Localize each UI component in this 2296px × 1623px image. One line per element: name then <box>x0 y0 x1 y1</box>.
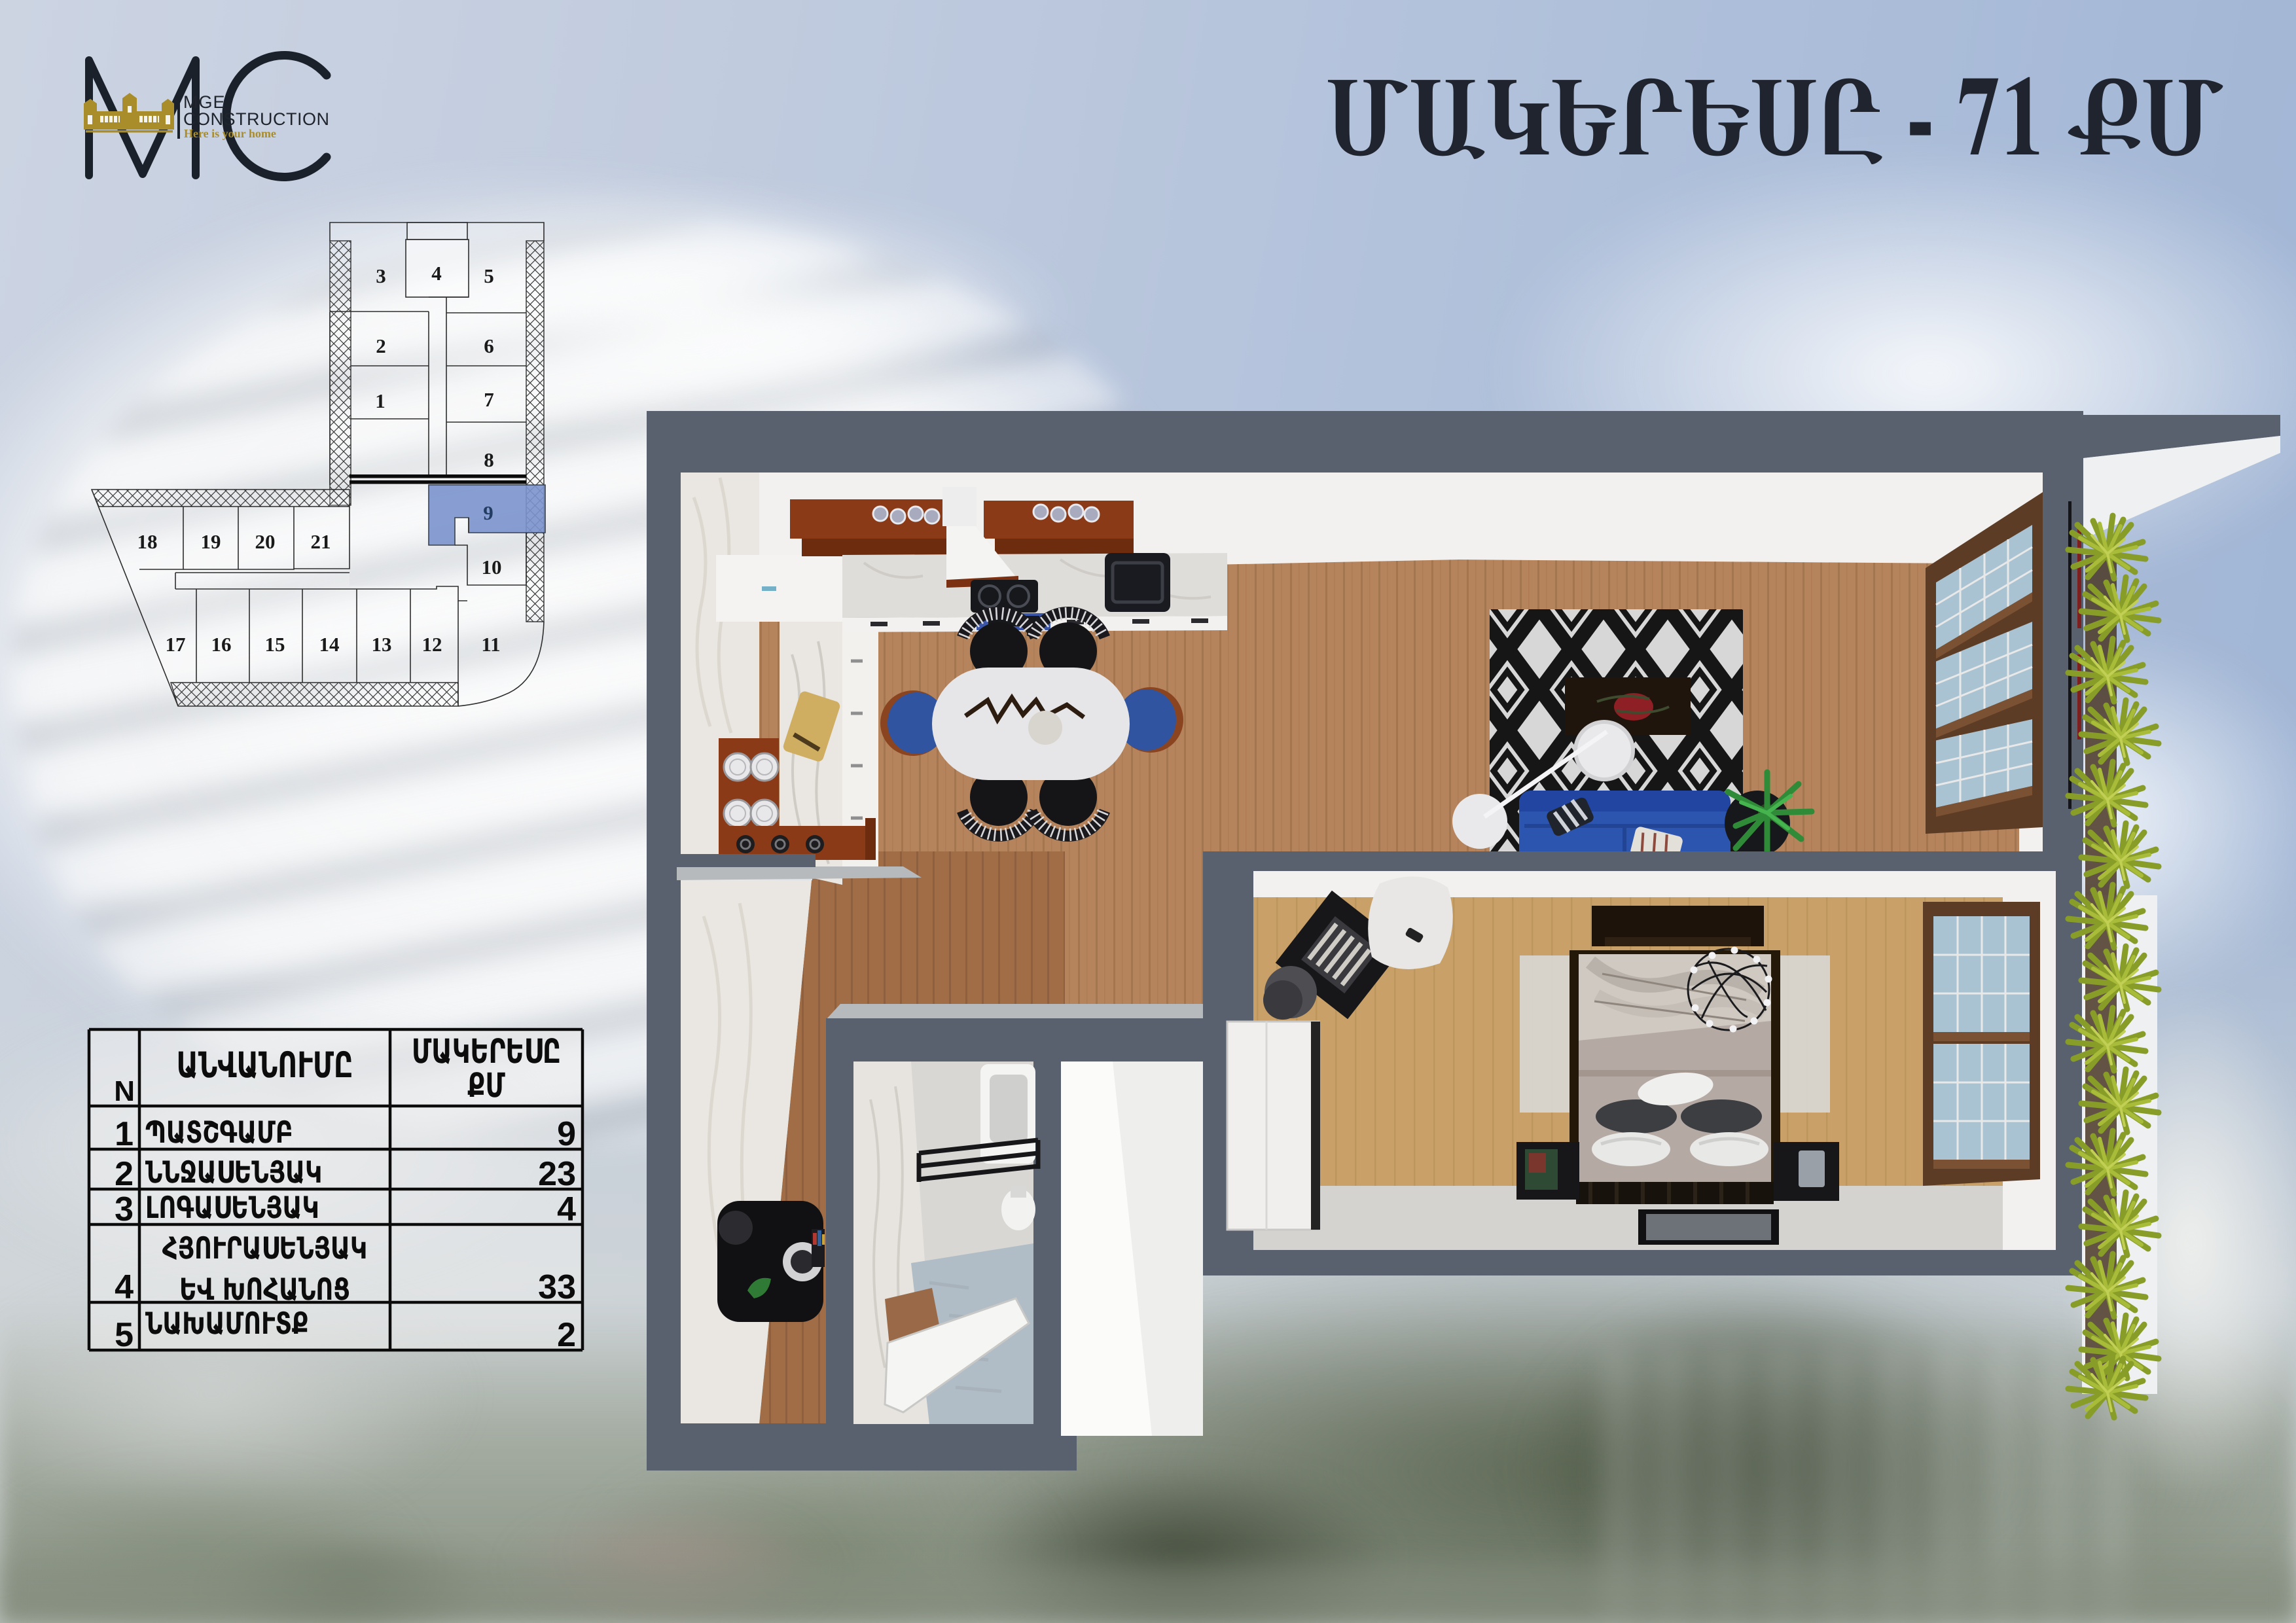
svg-text:15: 15 <box>265 633 285 656</box>
svg-text:5: 5 <box>115 1316 134 1354</box>
svg-text:2: 2 <box>115 1155 134 1193</box>
svg-text:23: 23 <box>538 1155 576 1193</box>
svg-text:12: 12 <box>422 633 442 656</box>
svg-text:9: 9 <box>483 501 493 524</box>
svg-text:Here is your home: Here is your home <box>184 127 276 140</box>
svg-text:18: 18 <box>137 530 158 553</box>
svg-text:2: 2 <box>376 334 386 357</box>
svg-text:CONSTRUCTION: CONSTRUCTION <box>183 109 330 129</box>
svg-text:4: 4 <box>431 262 442 285</box>
svg-text:4: 4 <box>557 1190 576 1228</box>
svg-text:6: 6 <box>484 334 494 357</box>
svg-text:21: 21 <box>311 530 331 553</box>
svg-text:8: 8 <box>484 448 494 471</box>
svg-text:1: 1 <box>375 389 386 412</box>
svg-text:1: 1 <box>115 1115 134 1153</box>
svg-text:N: N <box>114 1075 135 1107</box>
svg-text:10: 10 <box>482 556 502 579</box>
svg-text:2: 2 <box>557 1316 576 1354</box>
svg-text:4: 4 <box>115 1268 134 1306</box>
svg-text:33: 33 <box>538 1268 576 1306</box>
svg-text:20: 20 <box>255 530 276 553</box>
svg-text:5: 5 <box>484 264 494 287</box>
svg-text:13: 13 <box>372 633 392 656</box>
svg-text:9: 9 <box>557 1115 576 1153</box>
svg-text:14: 14 <box>319 633 340 656</box>
svg-text:3: 3 <box>376 264 386 287</box>
svg-text:3: 3 <box>115 1190 134 1228</box>
svg-text:7: 7 <box>484 388 494 411</box>
svg-text:19: 19 <box>201 530 221 553</box>
svg-text:11: 11 <box>481 633 500 656</box>
svg-text:17: 17 <box>166 633 186 656</box>
svg-text:16: 16 <box>211 633 232 656</box>
